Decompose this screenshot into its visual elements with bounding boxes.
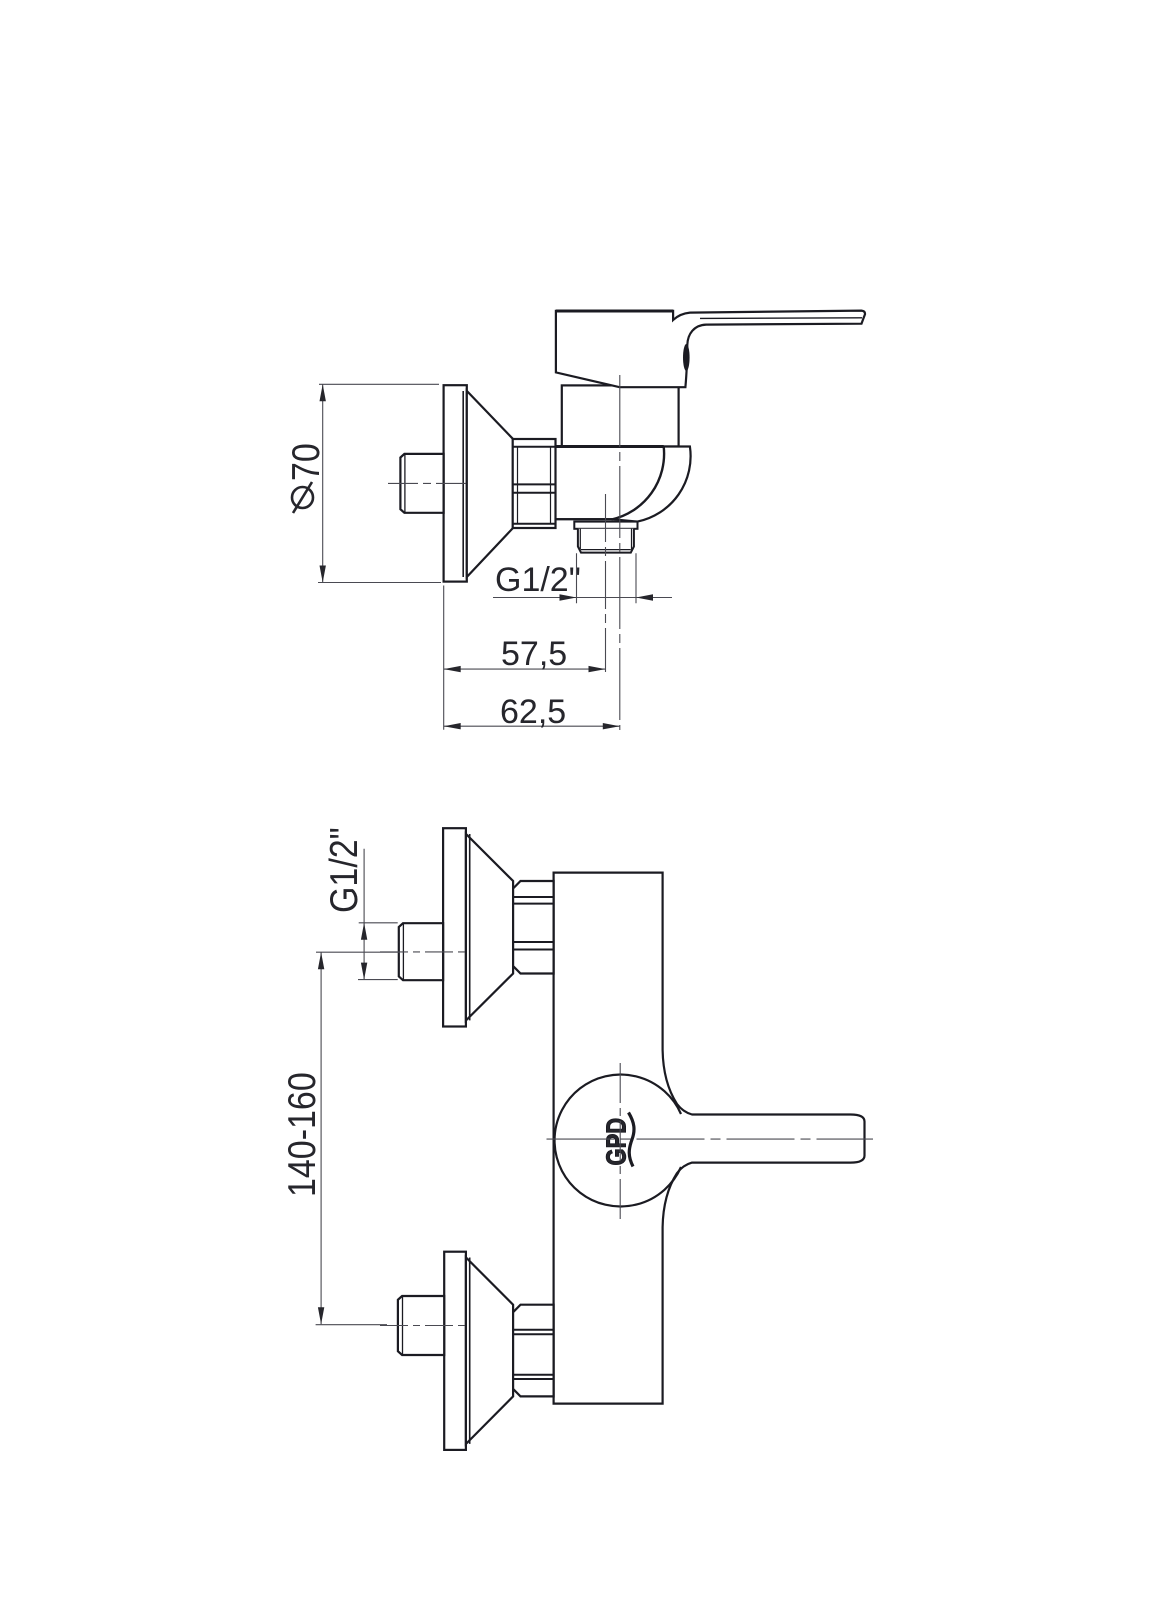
svg-text:70: 70 — [284, 443, 328, 481]
svg-text:G1/2": G1/2" — [322, 827, 366, 913]
svg-text:G1/2": G1/2" — [495, 561, 581, 599]
svg-text:57,5: 57,5 — [501, 635, 567, 673]
svg-text:140-160: 140-160 — [280, 1072, 324, 1197]
svg-text:62,5: 62,5 — [500, 693, 566, 731]
svg-text:GPD: GPD — [601, 1118, 632, 1166]
